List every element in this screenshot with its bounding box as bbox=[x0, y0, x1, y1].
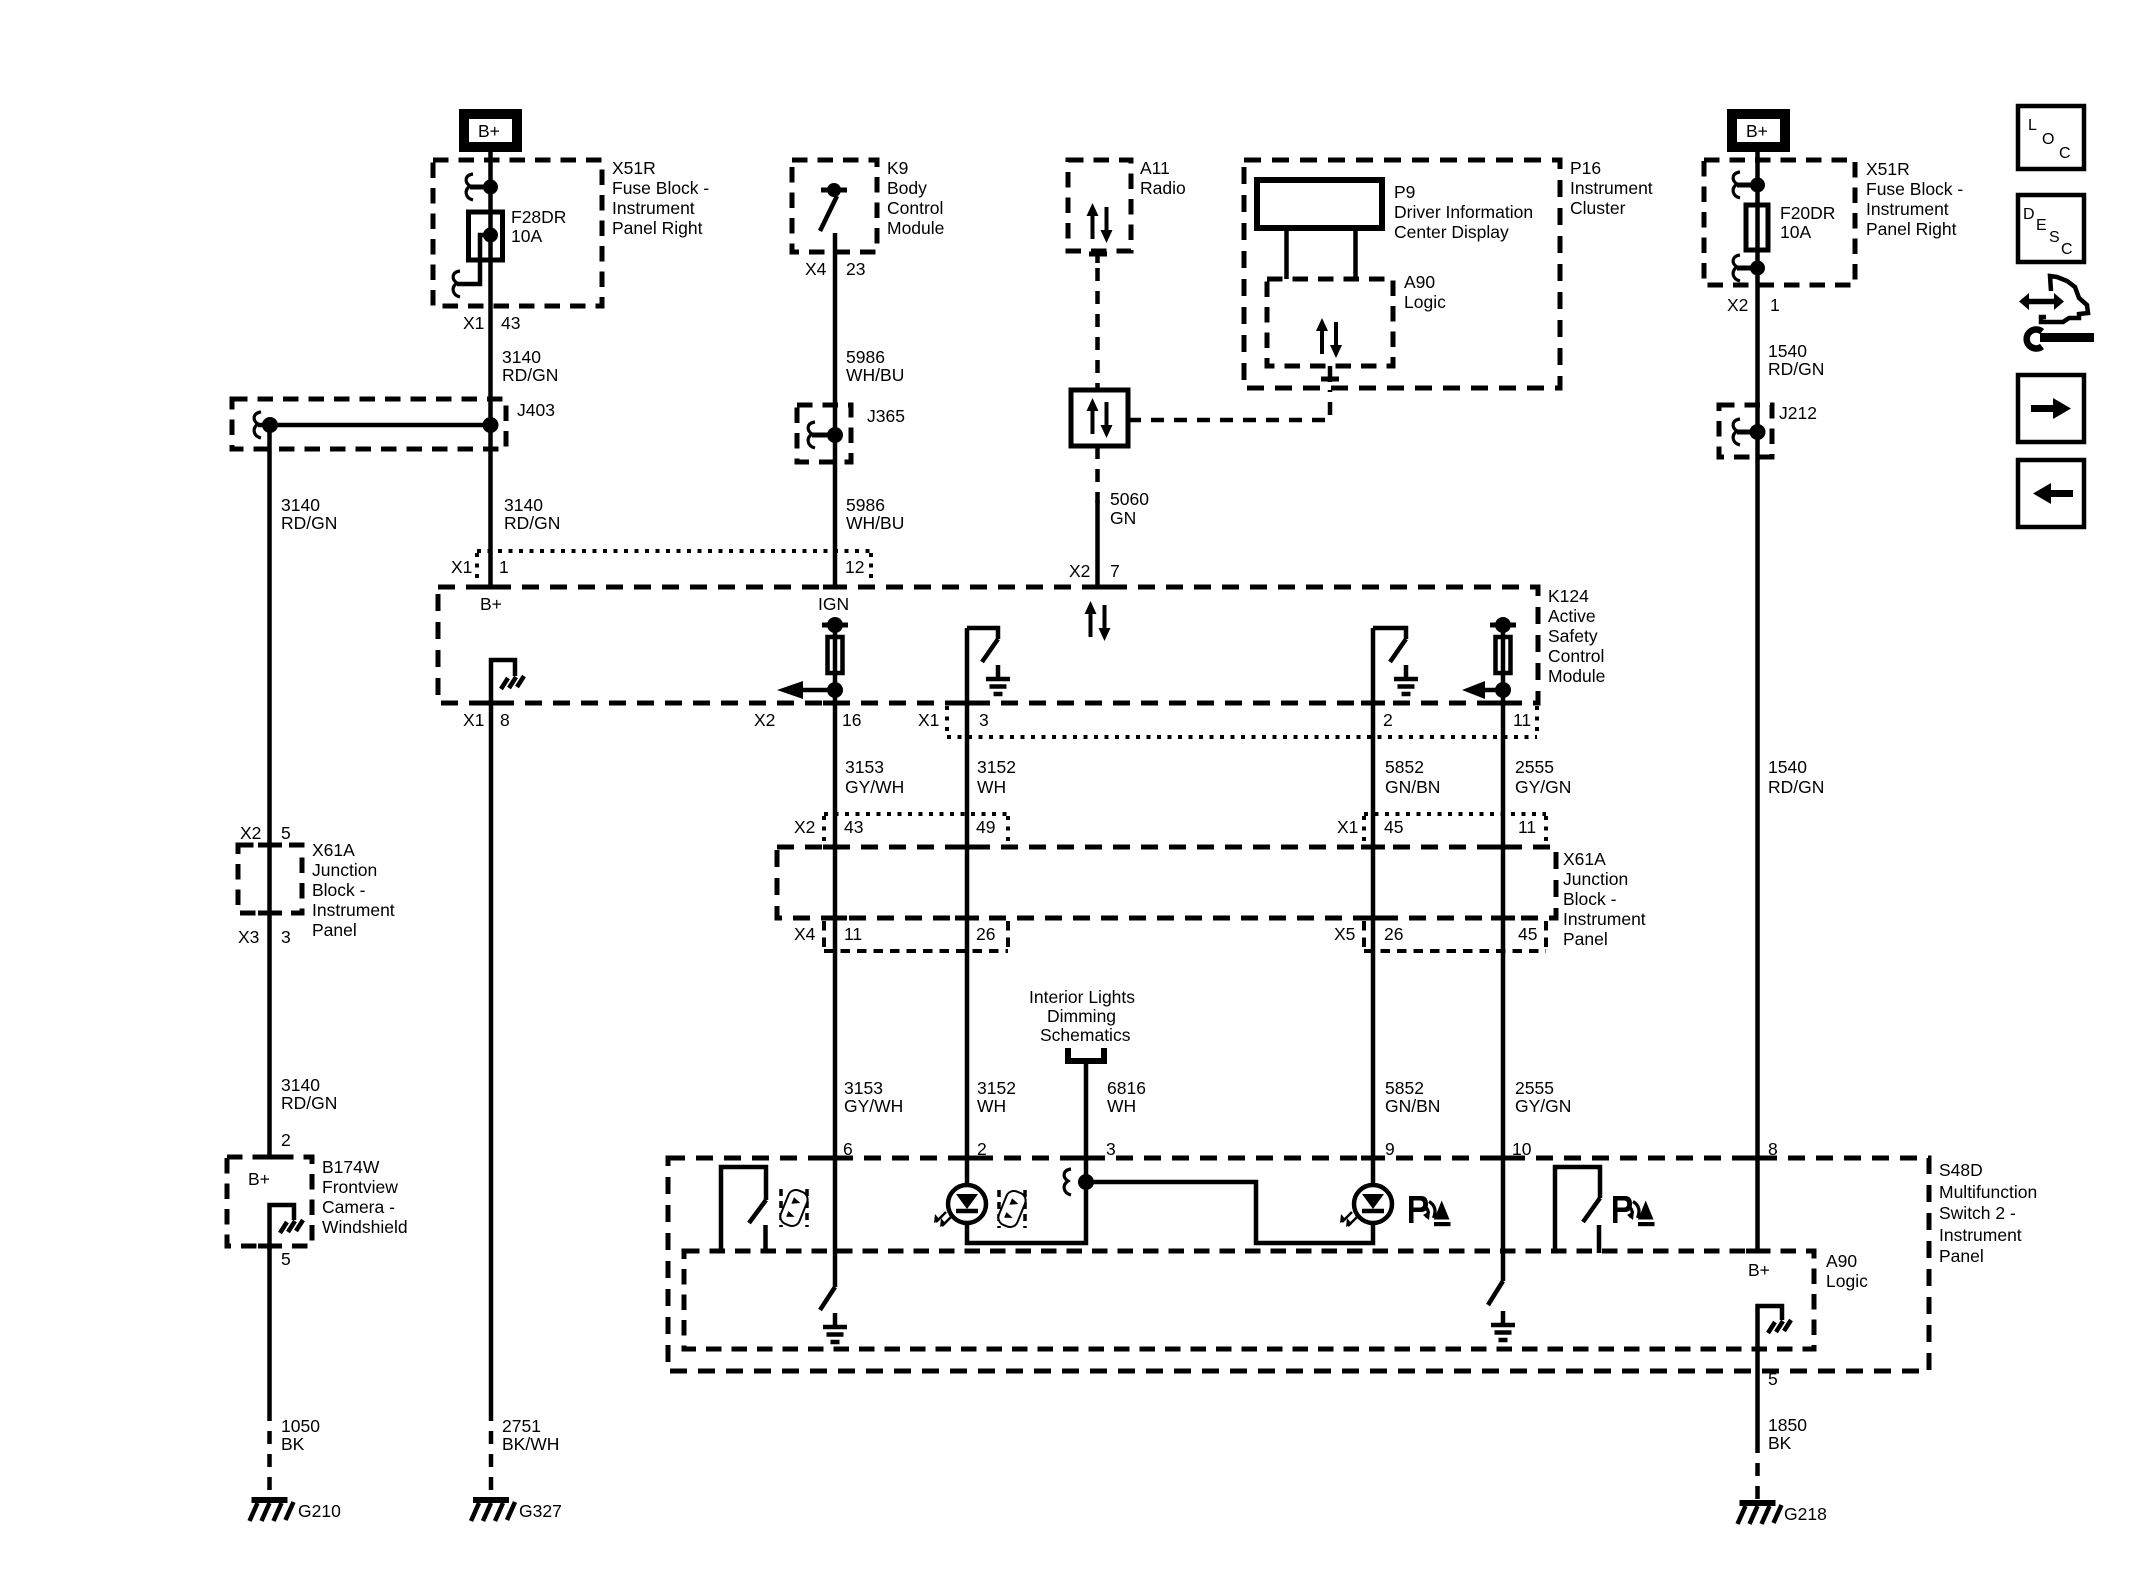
svg-text:Module: Module bbox=[887, 218, 944, 238]
svg-text:5986: 5986 bbox=[846, 347, 885, 367]
svg-text:X1: X1 bbox=[463, 710, 484, 730]
svg-text:Instrument: Instrument bbox=[1866, 199, 1949, 219]
svg-text:Windshield: Windshield bbox=[322, 1217, 408, 1237]
svg-text:GY/WH: GY/WH bbox=[845, 777, 904, 797]
svg-text:1: 1 bbox=[499, 557, 509, 577]
svg-text:Panel Right: Panel Right bbox=[612, 218, 703, 238]
svg-text:Logic: Logic bbox=[1826, 1271, 1868, 1291]
svg-text:Instrument: Instrument bbox=[612, 198, 695, 218]
svg-text:5986: 5986 bbox=[846, 495, 885, 515]
svg-text:BK/WH: BK/WH bbox=[502, 1434, 559, 1454]
svg-text:7: 7 bbox=[1110, 561, 1120, 581]
svg-text:GY/GN: GY/GN bbox=[1515, 1096, 1571, 1116]
svg-text:X2: X2 bbox=[240, 823, 261, 843]
svg-text:Camera -: Camera - bbox=[322, 1197, 395, 1217]
svg-text:Center Display: Center Display bbox=[1394, 222, 1509, 242]
svg-text:G218: G218 bbox=[1784, 1504, 1827, 1524]
svg-text:2555: 2555 bbox=[1515, 757, 1554, 777]
svg-text:Body: Body bbox=[887, 178, 927, 198]
svg-text:Schematics: Schematics bbox=[1040, 1025, 1131, 1045]
svg-text:C: C bbox=[2059, 145, 2071, 162]
svg-text:BK: BK bbox=[1768, 1433, 1792, 1453]
svg-text:26: 26 bbox=[976, 924, 995, 944]
svg-text:2555: 2555 bbox=[1515, 1078, 1554, 1098]
svg-text:WH/BU: WH/BU bbox=[846, 365, 904, 385]
svg-text:3140: 3140 bbox=[502, 347, 541, 367]
svg-text:O: O bbox=[2042, 131, 2054, 148]
svg-text:3: 3 bbox=[281, 927, 291, 947]
svg-text:Junction: Junction bbox=[312, 860, 377, 880]
svg-text:P9: P9 bbox=[1394, 182, 1415, 202]
svg-text:S48D: S48D bbox=[1939, 1160, 1983, 1180]
svg-text:9: 9 bbox=[1385, 1139, 1395, 1159]
svg-text:3152: 3152 bbox=[977, 757, 1016, 777]
svg-text:2: 2 bbox=[1383, 710, 1393, 730]
svg-text:23: 23 bbox=[846, 259, 865, 279]
svg-text:RD/GN: RD/GN bbox=[502, 365, 558, 385]
svg-text:16: 16 bbox=[842, 710, 861, 730]
svg-text:X2: X2 bbox=[1069, 561, 1090, 581]
svg-text:11: 11 bbox=[844, 924, 862, 944]
svg-text:Dimming: Dimming bbox=[1047, 1006, 1116, 1026]
svg-text:45: 45 bbox=[1384, 817, 1403, 837]
svg-text:5: 5 bbox=[1768, 1369, 1778, 1389]
svg-text:X61A: X61A bbox=[312, 840, 355, 860]
svg-text:10A: 10A bbox=[511, 226, 542, 246]
svg-text:WH: WH bbox=[1107, 1096, 1136, 1116]
svg-text:J403: J403 bbox=[517, 400, 555, 420]
svg-text:Instrument: Instrument bbox=[1939, 1225, 2022, 1245]
svg-text:Active: Active bbox=[1548, 606, 1596, 626]
svg-text:1540: 1540 bbox=[1768, 757, 1807, 777]
svg-text:11: 11 bbox=[1518, 817, 1536, 837]
svg-text:C: C bbox=[2061, 241, 2073, 258]
svg-text:5: 5 bbox=[281, 823, 291, 843]
svg-text:2751: 2751 bbox=[502, 1416, 541, 1436]
svg-text:3152: 3152 bbox=[977, 1078, 1016, 1098]
svg-text:WH: WH bbox=[977, 777, 1006, 797]
svg-text:3140: 3140 bbox=[504, 495, 543, 515]
svg-text:P16: P16 bbox=[1570, 158, 1601, 178]
svg-text:J212: J212 bbox=[1779, 403, 1817, 423]
svg-text:A90: A90 bbox=[1404, 272, 1435, 292]
svg-text:Switch 2 -: Switch 2 - bbox=[1939, 1203, 2016, 1223]
svg-text:Instrument: Instrument bbox=[1563, 909, 1646, 929]
svg-text:WH/BU: WH/BU bbox=[846, 513, 904, 533]
svg-text:GY/GN: GY/GN bbox=[1515, 777, 1571, 797]
svg-text:X2: X2 bbox=[1727, 295, 1748, 315]
svg-text:X1: X1 bbox=[463, 313, 484, 333]
svg-text:10A: 10A bbox=[1780, 222, 1811, 242]
svg-text:3140: 3140 bbox=[281, 495, 320, 515]
svg-text:3140: 3140 bbox=[281, 1075, 320, 1095]
svg-text:B+: B+ bbox=[1746, 121, 1768, 141]
svg-text:Control: Control bbox=[1548, 646, 1604, 666]
svg-text:RD/GN: RD/GN bbox=[1768, 359, 1824, 379]
svg-text:RD/GN: RD/GN bbox=[504, 513, 560, 533]
svg-text:Fuse Block -: Fuse Block - bbox=[1866, 179, 1963, 199]
svg-text:Block -: Block - bbox=[1563, 889, 1617, 909]
svg-text:43: 43 bbox=[501, 313, 520, 333]
svg-text:1050: 1050 bbox=[281, 1416, 320, 1436]
svg-text:X1: X1 bbox=[1337, 817, 1358, 837]
svg-text:11: 11 bbox=[1513, 710, 1531, 730]
svg-text:BK: BK bbox=[281, 1434, 305, 1454]
svg-text:X3: X3 bbox=[238, 927, 259, 947]
svg-text:Driver Information: Driver Information bbox=[1394, 202, 1533, 222]
svg-text:3153: 3153 bbox=[845, 757, 884, 777]
svg-text:5: 5 bbox=[281, 1249, 291, 1269]
svg-text:Multifunction: Multifunction bbox=[1939, 1182, 2037, 1202]
svg-text:X5: X5 bbox=[1334, 924, 1355, 944]
svg-text:WH: WH bbox=[977, 1096, 1006, 1116]
svg-text:A90: A90 bbox=[1826, 1251, 1857, 1271]
svg-text:12: 12 bbox=[845, 557, 864, 577]
svg-text:K124: K124 bbox=[1548, 586, 1589, 606]
svg-text:RD/GN: RD/GN bbox=[281, 1093, 337, 1113]
svg-text:Junction: Junction bbox=[1563, 869, 1628, 889]
svg-text:2: 2 bbox=[281, 1130, 291, 1150]
svg-text:S: S bbox=[2049, 229, 2060, 246]
svg-text:G327: G327 bbox=[519, 1501, 562, 1521]
svg-text:Panel: Panel bbox=[312, 920, 357, 940]
svg-text:Block -: Block - bbox=[312, 880, 366, 900]
svg-text:Frontview: Frontview bbox=[322, 1177, 398, 1197]
svg-text:3: 3 bbox=[1106, 1139, 1116, 1159]
svg-text:RD/GN: RD/GN bbox=[1768, 777, 1824, 797]
svg-text:8: 8 bbox=[500, 710, 510, 730]
svg-text:Panel Right: Panel Right bbox=[1866, 219, 1957, 239]
svg-text:26: 26 bbox=[1384, 924, 1403, 944]
svg-text:Control: Control bbox=[887, 198, 943, 218]
svg-text:Cluster: Cluster bbox=[1570, 198, 1626, 218]
svg-text:GN/BN: GN/BN bbox=[1385, 777, 1440, 797]
svg-text:43: 43 bbox=[844, 817, 863, 837]
svg-text:Panel: Panel bbox=[1939, 1246, 1984, 1266]
svg-text:G210: G210 bbox=[298, 1501, 341, 1521]
svg-text:K9: K9 bbox=[887, 158, 908, 178]
svg-text:X1: X1 bbox=[451, 557, 472, 577]
svg-text:1850: 1850 bbox=[1768, 1415, 1807, 1435]
svg-text:49: 49 bbox=[976, 817, 995, 837]
svg-text:X51R: X51R bbox=[1866, 159, 1910, 179]
svg-text:Module: Module bbox=[1548, 666, 1605, 686]
svg-text:X51R: X51R bbox=[612, 158, 656, 178]
svg-text:1540: 1540 bbox=[1768, 341, 1807, 361]
svg-text:Instrument: Instrument bbox=[1570, 178, 1653, 198]
svg-text:RD/GN: RD/GN bbox=[281, 513, 337, 533]
svg-text:Safety: Safety bbox=[1548, 626, 1598, 646]
svg-text:GN: GN bbox=[1110, 508, 1136, 528]
svg-text:Logic: Logic bbox=[1404, 292, 1446, 312]
svg-text:E: E bbox=[2036, 217, 2047, 234]
svg-text:Interior Lights: Interior Lights bbox=[1029, 987, 1135, 1007]
svg-text:3153: 3153 bbox=[844, 1078, 883, 1098]
svg-text:5060: 5060 bbox=[1110, 489, 1149, 509]
svg-text:X2: X2 bbox=[754, 710, 775, 730]
svg-text:45: 45 bbox=[1518, 924, 1537, 944]
svg-text:X4: X4 bbox=[805, 259, 827, 279]
svg-text:GY/WH: GY/WH bbox=[844, 1096, 903, 1116]
svg-text:B+: B+ bbox=[248, 1169, 270, 1189]
svg-text:J365: J365 bbox=[867, 406, 905, 426]
svg-text:Fuse Block -: Fuse Block - bbox=[612, 178, 709, 198]
svg-text:F28DR: F28DR bbox=[511, 207, 566, 227]
svg-text:L: L bbox=[2028, 117, 2037, 134]
svg-text:X1: X1 bbox=[918, 710, 939, 730]
svg-text:Panel: Panel bbox=[1563, 929, 1608, 949]
svg-text:B174W: B174W bbox=[322, 1157, 380, 1177]
svg-text:GN/BN: GN/BN bbox=[1385, 1096, 1440, 1116]
svg-text:5852: 5852 bbox=[1385, 757, 1424, 777]
svg-text:X2: X2 bbox=[794, 817, 815, 837]
svg-text:D: D bbox=[2023, 206, 2035, 223]
svg-text:A11: A11 bbox=[1140, 158, 1170, 178]
svg-text:X61A: X61A bbox=[1563, 849, 1606, 869]
svg-text:3: 3 bbox=[979, 710, 989, 730]
svg-text:X4: X4 bbox=[794, 924, 816, 944]
svg-text:6816: 6816 bbox=[1107, 1078, 1146, 1098]
svg-text:B+: B+ bbox=[478, 121, 500, 141]
svg-text:B+: B+ bbox=[1748, 1260, 1770, 1280]
svg-text:F20DR: F20DR bbox=[1780, 203, 1835, 223]
svg-text:1: 1 bbox=[1770, 295, 1780, 315]
svg-text:Instrument: Instrument bbox=[312, 900, 395, 920]
svg-text:5852: 5852 bbox=[1385, 1078, 1424, 1098]
svg-text:Radio: Radio bbox=[1140, 178, 1186, 198]
svg-text:IGN: IGN bbox=[818, 594, 849, 614]
svg-text:B+: B+ bbox=[480, 594, 502, 614]
